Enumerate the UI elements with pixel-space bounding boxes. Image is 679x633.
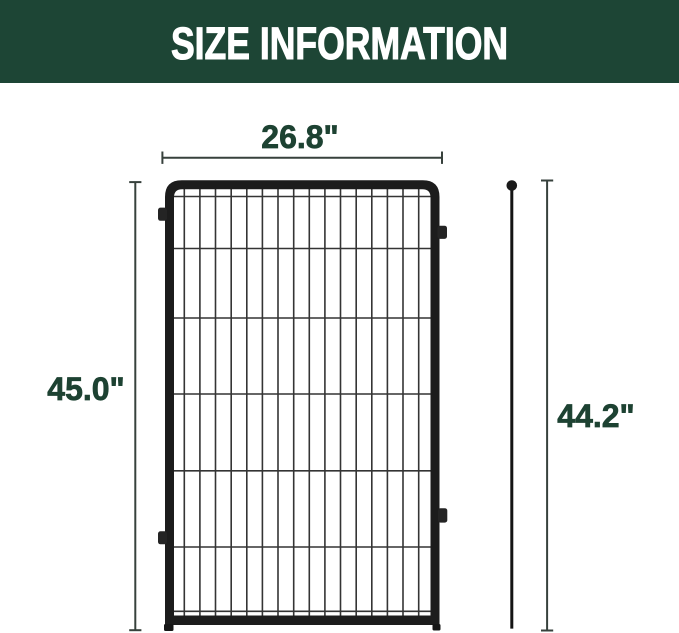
svg-text:44.2": 44.2" [557, 398, 634, 434]
svg-text:26.8": 26.8" [261, 119, 338, 155]
svg-text:45.0": 45.0" [47, 371, 124, 407]
